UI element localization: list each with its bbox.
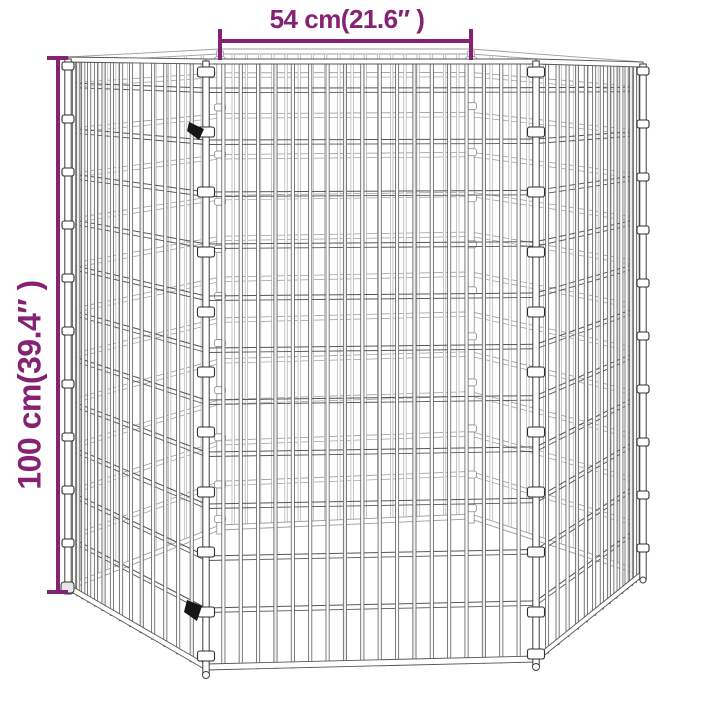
width-dimension-tick-left [218,29,222,60]
playpen-wireframe-illustration [0,0,720,720]
width-dimension-label: 54 cm(21.6″ ) [270,4,425,35]
width-dimension-tick-right [469,29,473,60]
height-dimension-cap-bottom [47,590,68,594]
height-dimension-cap-top [47,56,68,60]
height-dimension-label: 100 cm(39.4″ ) [12,280,49,489]
height-dimension-line [56,58,60,591]
product-dimension-image: 54 cm(21.6″ ) 100 cm(39.4″ ) [0,0,720,720]
width-dimension-line [221,39,470,43]
